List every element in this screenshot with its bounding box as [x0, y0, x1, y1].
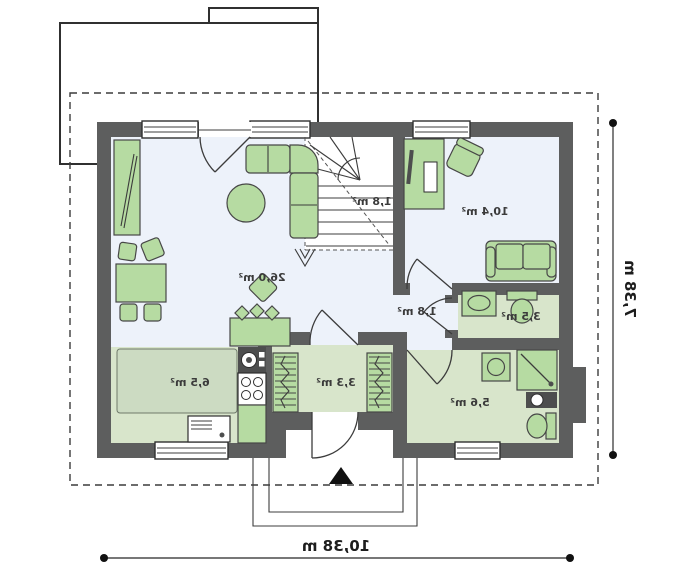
balcony-door-opening: [199, 122, 251, 137]
wardrobe-right: [367, 353, 392, 412]
dimension-depth: 7,38 m: [609, 119, 639, 459]
kitchen-counter: [238, 405, 266, 443]
floor-plan-drawing: 26,0 m² 1,8 m² 10,4 m² 1,8 m² 3,5 m² 6,5…: [0, 0, 700, 575]
wall-west: [97, 122, 111, 458]
staircase-area-label: 1,8 m²: [352, 195, 392, 208]
wc-area-label: 3,5 m²: [501, 310, 541, 323]
bath-toilet: [527, 413, 556, 439]
washing-machine: [482, 353, 510, 381]
dining-table: [116, 264, 166, 302]
desk-chair: [424, 162, 437, 192]
study-area-label: 10,4 m²: [461, 205, 508, 218]
window-living-2: [250, 121, 310, 138]
wall-bath-west: [393, 350, 407, 458]
chimney: [573, 367, 586, 423]
bath-sink: [531, 394, 543, 406]
study-sofa: [486, 241, 556, 281]
wall-wc-south: [452, 338, 573, 350]
wardrobe-left: [273, 353, 298, 412]
wall-stairs-east: [393, 137, 405, 283]
north-arrow-icon: [329, 467, 353, 484]
dimension-width: 10,38 m: [100, 537, 574, 562]
coffee-table: [227, 184, 265, 222]
sink-drain: [246, 357, 252, 363]
floor-plan-page: 26,0 m² 1,8 m² 10,4 m² 1,8 m² 3,5 m² 6,5…: [0, 0, 700, 575]
shower: [517, 350, 557, 390]
sideboard: [114, 140, 140, 235]
stove: [238, 373, 266, 405]
wall-hall-south-b: [358, 332, 407, 345]
width-dimension-label: 10,38 m: [302, 537, 370, 555]
sink-detail: [259, 352, 265, 358]
window-living-1: [142, 121, 198, 138]
chair: [118, 242, 137, 261]
hall-area-label: 1,8 m²: [397, 305, 437, 318]
kitchen-area-label: 6,5 m²: [170, 376, 210, 389]
wall-entry-stub: [272, 430, 286, 458]
chair: [144, 304, 161, 321]
entry-area-label: 3,3 m²: [316, 376, 356, 389]
front-door-opening: [312, 412, 358, 430]
dishwasher: [188, 416, 230, 442]
sink-detail: [259, 361, 265, 367]
window-kitchen: [155, 442, 228, 459]
bathroom-area-label: 5,6 m²: [450, 396, 490, 409]
window-study: [413, 121, 470, 138]
wc-sink: [462, 291, 496, 316]
depth-dimension-label: 7,38 m: [621, 260, 639, 318]
window-bathroom: [455, 442, 500, 459]
porch-steps: [253, 458, 417, 526]
living-room-area-label: 26,0 m²: [238, 271, 285, 284]
chair: [120, 304, 137, 321]
